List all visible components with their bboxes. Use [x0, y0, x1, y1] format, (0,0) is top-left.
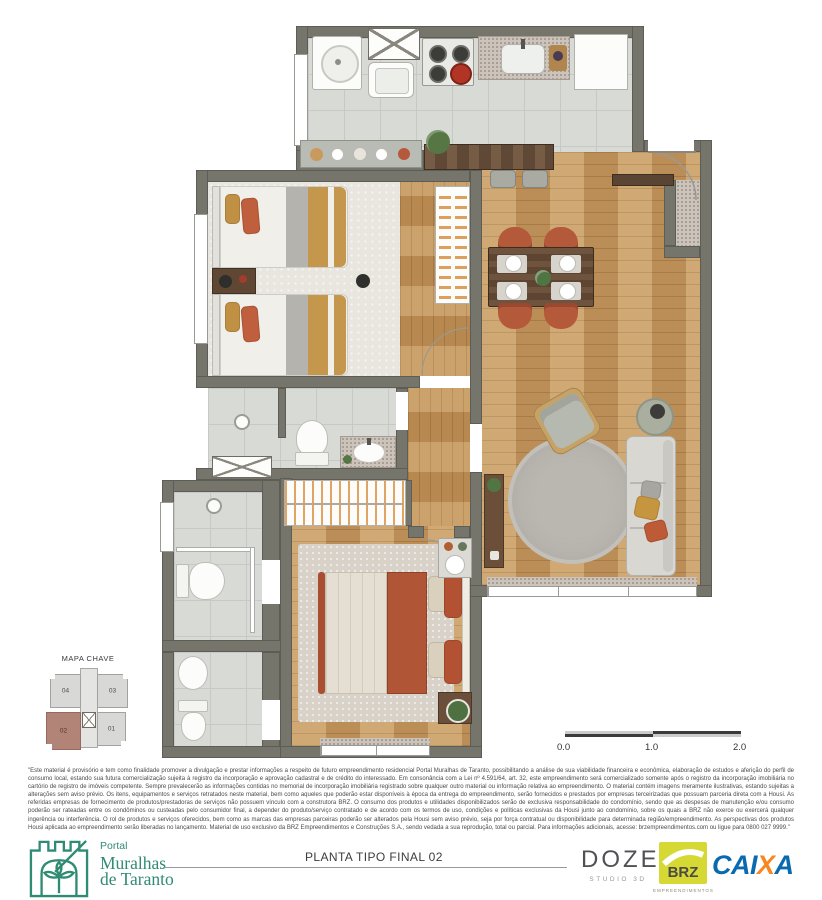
scale-label: 1.0 [645, 742, 658, 753]
centerpiece-plant [535, 270, 551, 286]
caixa-logo: CAIXA [712, 850, 794, 881]
pillow-gold [633, 495, 661, 522]
laundry-sink [368, 62, 414, 98]
key-map: MAPA CHAVE 04 03 02 01 [36, 650, 140, 754]
vanity-sink [353, 442, 385, 463]
double-bed [316, 570, 470, 696]
plate [331, 148, 344, 161]
master-window-sill [320, 738, 430, 745]
key-map-shaft [82, 712, 96, 728]
wall [162, 746, 292, 758]
door-opening [470, 424, 482, 472]
faucet [521, 39, 525, 49]
closet-rod [287, 503, 403, 505]
plate [353, 147, 367, 161]
toilet-tank [176, 564, 189, 598]
shower-head [206, 498, 222, 514]
kitchen-cabinet [300, 140, 422, 168]
legal-disclaimer: "Este material é provisório e tem como f… [28, 767, 794, 832]
master-window [320, 745, 430, 756]
tv-console [484, 474, 504, 568]
stove [422, 38, 474, 86]
key-map-unit-02: 02 [46, 712, 81, 750]
pillow-gold [225, 302, 240, 332]
burner [429, 45, 447, 63]
decor-dot [458, 542, 467, 551]
table-lamp [650, 404, 665, 419]
shower-glass [176, 547, 254, 552]
doze-logo: DOZE STUDIO 3D [581, 846, 655, 883]
plate [505, 255, 522, 272]
notch [46, 744, 52, 750]
blanket-gray [286, 295, 308, 375]
wall [700, 140, 712, 597]
toilet [296, 420, 328, 456]
shaft-bathrooms [212, 456, 272, 478]
floor-lamp [356, 274, 370, 288]
wall [196, 170, 470, 182]
master-closet [284, 480, 406, 526]
decor-dot [444, 542, 453, 551]
scale-segment [565, 734, 653, 737]
toilet-tank [178, 700, 208, 712]
kitchen-window [294, 54, 308, 146]
bowl [397, 147, 411, 161]
console-plant [487, 478, 501, 492]
plate [505, 283, 522, 300]
wall [664, 246, 700, 258]
entry-sideboard [612, 174, 674, 186]
headboard [212, 186, 220, 268]
shower-glass [250, 547, 255, 633]
plan-label: PLANTA TIPO FINAL 02 [305, 850, 443, 864]
door-opening [262, 700, 280, 740]
bedroom1-window [194, 214, 208, 344]
bedroom1-door-arc [420, 326, 470, 376]
blanket-gray [286, 187, 308, 267]
toilet [181, 712, 206, 741]
single-bed [212, 186, 348, 268]
caixa-x: X [757, 850, 775, 880]
unit-number: 01 [98, 726, 125, 733]
door-opening [420, 376, 470, 388]
lamp [219, 275, 232, 288]
hanger-rail [455, 191, 467, 299]
notch [121, 741, 126, 746]
vanity [340, 436, 396, 468]
pedestal-sink [178, 656, 208, 690]
nightstand [438, 538, 472, 578]
pillow-terracotta [444, 574, 462, 618]
fridge-counter [574, 34, 628, 90]
plate [559, 283, 576, 300]
hanger-rail [439, 191, 451, 299]
building-core [80, 668, 98, 748]
console-item [490, 551, 499, 560]
notch [50, 674, 55, 679]
blanket-terracotta [387, 572, 427, 694]
bar-plant [426, 130, 450, 154]
footer: Portal Muralhas de Taranto PLANTA TIPO F… [0, 836, 822, 900]
blanket-gold [308, 187, 328, 267]
sofa-backrest [663, 440, 673, 572]
plant [446, 699, 470, 723]
wall [278, 388, 286, 438]
plate [375, 148, 388, 161]
wall [408, 526, 424, 538]
foot-blanket-edge [318, 572, 325, 694]
wall [454, 526, 470, 538]
wall [162, 652, 174, 758]
page: { "colors": { "brand_green": "#2F8B73", … [0, 0, 822, 900]
shower-head [234, 414, 250, 430]
scale-label: 2.0 [733, 742, 746, 753]
bar-stool [490, 170, 516, 188]
single-bed [212, 294, 348, 376]
logo-castle-icon [28, 838, 90, 898]
door-opening [396, 392, 408, 430]
nightstand [438, 692, 472, 724]
vase [239, 275, 247, 283]
bar-stool [522, 170, 548, 188]
burner [429, 65, 447, 83]
wall [632, 26, 644, 152]
brz-sub: EMPREENDIMENTOS [653, 888, 713, 893]
round-rug [508, 436, 636, 564]
wall [470, 170, 482, 424]
faucet [367, 438, 371, 445]
pillow-terracotta [444, 640, 462, 684]
key-map-unit-03: 03 [97, 674, 128, 708]
unit-number: 02 [47, 728, 80, 735]
caixa-part3: A [775, 850, 794, 880]
kitchen-countertop [478, 36, 570, 80]
blanket-gold [308, 295, 328, 375]
pot [450, 63, 472, 85]
toilet-tank [295, 452, 329, 466]
living-window [487, 586, 697, 597]
berries [553, 51, 563, 61]
toilet [189, 562, 225, 600]
doze-name: DOZE [581, 846, 655, 874]
blanket-gold [334, 187, 346, 267]
vanity-plant [343, 455, 352, 464]
headboard [212, 294, 220, 376]
quilt [325, 572, 387, 694]
wardrobe [435, 186, 470, 304]
hallway-floor [408, 388, 470, 532]
brz-name: BRZ [659, 864, 707, 881]
key-map-title: MAPA CHAVE [36, 654, 140, 663]
unit-number: 04 [51, 688, 80, 695]
door-opening [262, 560, 280, 604]
tray [445, 555, 465, 575]
doze-sub: STUDIO 3D [581, 876, 655, 883]
pillow-gold [225, 194, 240, 224]
plan-label-rule: PLANTA TIPO FINAL 02 [163, 836, 567, 868]
bowl [309, 147, 324, 162]
burner [452, 45, 470, 63]
scale-bar: 0.0 1.0 2.0 [565, 731, 741, 757]
balcony-sill [487, 577, 697, 586]
pillow-orange [240, 197, 260, 234]
wall [162, 640, 292, 652]
caixa-part1: CAI [712, 850, 757, 880]
notch [123, 674, 128, 679]
brz-square: BRZ [659, 842, 707, 884]
unit-number: 03 [98, 688, 127, 695]
key-map-unit-01: 01 [97, 712, 126, 746]
floor-plan [0, 0, 822, 900]
washing-machine-knob [335, 59, 341, 65]
shaft-kitchen [368, 28, 420, 60]
laundry-sink-basin [375, 68, 409, 94]
pillow-orange [240, 305, 260, 342]
bathroom2-window [160, 502, 174, 552]
nightstand [212, 268, 256, 294]
washing-machine [312, 36, 362, 90]
headboard [462, 570, 470, 696]
dining-table [488, 247, 594, 307]
blanket-gold [334, 295, 346, 375]
plate [559, 255, 576, 272]
scale-segment [653, 734, 741, 737]
logo-title-line2: de Taranto [100, 871, 174, 888]
sofa [626, 436, 676, 576]
scale-label: 0.0 [557, 742, 570, 753]
key-map-unit-04: 04 [50, 674, 81, 708]
wall [196, 376, 420, 388]
